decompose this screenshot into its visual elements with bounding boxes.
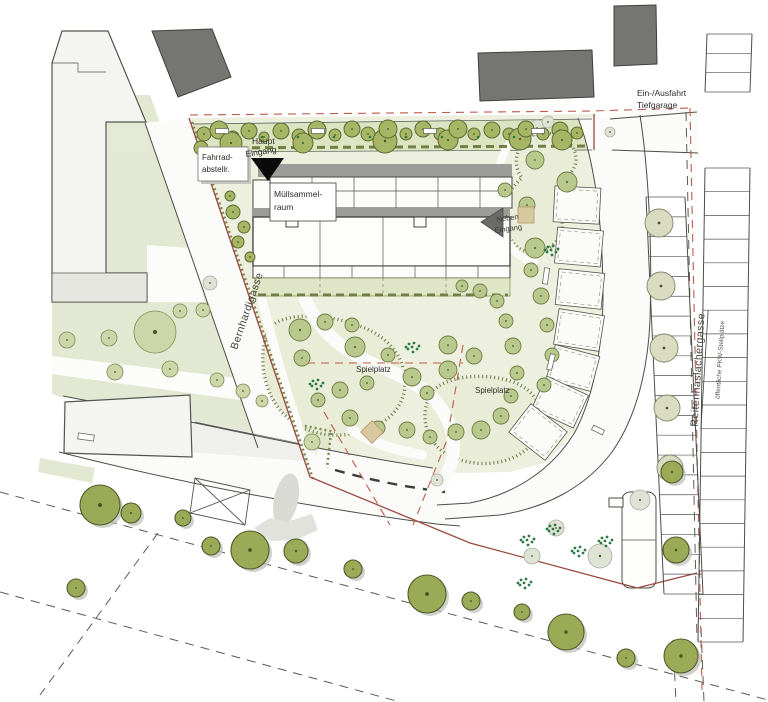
tree-trunk-dot bbox=[473, 355, 475, 357]
shrub-dot bbox=[554, 524, 557, 527]
tree-trunk-dot bbox=[504, 189, 506, 191]
tree-trunk-dot bbox=[519, 138, 521, 140]
shrub-dot bbox=[578, 555, 581, 558]
tree-trunk-dot bbox=[311, 441, 313, 443]
planting-bed bbox=[112, 128, 147, 152]
sandbox-square bbox=[518, 207, 534, 223]
shrub-dot bbox=[528, 535, 531, 538]
site-plan: Ein-/Ausfahrt Tiefgarage Fahrrad- abstel… bbox=[0, 0, 768, 702]
tree-trunk-dot bbox=[500, 415, 502, 417]
shrub-dot bbox=[524, 587, 527, 590]
tree-trunk-dot bbox=[491, 129, 493, 131]
shrub-dot bbox=[555, 251, 558, 254]
tree-trunk-dot bbox=[349, 417, 351, 419]
tree-trunk-dot bbox=[426, 392, 428, 394]
label-bike-storage: Fahrrad- bbox=[202, 153, 233, 162]
tree-trunk-dot bbox=[525, 128, 527, 130]
tree-trunk-dot bbox=[671, 471, 673, 473]
shrub-dot bbox=[573, 552, 576, 555]
bench-rect bbox=[216, 129, 229, 134]
tree-trunk-dot bbox=[339, 389, 341, 391]
shrub-dot bbox=[322, 382, 325, 385]
south-facade-row bbox=[253, 266, 510, 278]
shrub-dot bbox=[311, 385, 314, 388]
shrub-dot bbox=[546, 528, 549, 531]
shrub-dot bbox=[526, 539, 529, 542]
tree-trunk-dot bbox=[203, 133, 205, 135]
tree-trunk-dot bbox=[658, 222, 661, 225]
tree-trunk-dot bbox=[98, 503, 102, 507]
tree-trunk-dot bbox=[534, 247, 536, 249]
tree-trunk-dot bbox=[675, 549, 678, 552]
planting-dot bbox=[405, 136, 408, 139]
shrub-dot bbox=[611, 539, 614, 542]
tree-trunk-dot bbox=[295, 550, 297, 552]
tree-trunk-dot bbox=[516, 372, 518, 374]
neighbor-building-northeast bbox=[478, 50, 594, 101]
tree-trunk-dot bbox=[301, 357, 303, 359]
shrub-dot bbox=[552, 528, 555, 531]
shrub-dot bbox=[606, 536, 609, 539]
shrub-dot bbox=[316, 388, 319, 391]
bench bbox=[312, 129, 325, 134]
tree-trunk-dot bbox=[530, 269, 532, 271]
parking-rail bbox=[750, 34, 752, 92]
shrub-dot bbox=[525, 578, 528, 581]
tree-trunk-dot bbox=[660, 285, 663, 288]
tree-trunk-dot bbox=[130, 512, 132, 514]
tree-trunk-dot bbox=[334, 134, 336, 136]
tree-trunk-dot bbox=[543, 384, 545, 386]
shrub-dot bbox=[559, 527, 562, 530]
tree-trunk-dot bbox=[405, 133, 407, 135]
tree-trunk-dot bbox=[299, 329, 301, 331]
shrub-dot bbox=[546, 251, 549, 254]
shrub-dot bbox=[312, 380, 315, 383]
tree-trunk-dot bbox=[229, 195, 231, 197]
tree-trunk-dot bbox=[153, 330, 157, 334]
shrub-dot bbox=[550, 249, 553, 252]
tree-trunk-dot bbox=[510, 395, 512, 397]
tree-trunk-dot bbox=[352, 568, 354, 570]
shrub-dot bbox=[571, 550, 574, 553]
shrub-dot bbox=[413, 342, 416, 345]
label-garage-access: Ein-/Ausfahrt bbox=[637, 88, 687, 98]
planting-dot bbox=[369, 136, 372, 139]
tree-trunk-dot bbox=[534, 159, 536, 161]
tree-trunk-dot bbox=[367, 133, 369, 135]
shrub-dot bbox=[418, 345, 421, 348]
label-waste-room: Müllsammel- bbox=[274, 189, 322, 199]
planting-dot bbox=[297, 136, 300, 139]
tree-trunk-dot bbox=[302, 142, 304, 144]
tree-trunk-dot bbox=[366, 382, 368, 384]
tree-trunk-dot bbox=[179, 310, 181, 312]
shrub-dot bbox=[557, 248, 560, 251]
tree-trunk-dot bbox=[351, 128, 353, 130]
existing-building-south bbox=[64, 395, 192, 457]
tree-trunk-dot bbox=[566, 181, 568, 183]
shrub-dot bbox=[408, 343, 411, 346]
tree-trunk-dot bbox=[429, 436, 431, 438]
label-waste-room-2: raum bbox=[274, 202, 293, 212]
shrub-dot bbox=[533, 538, 536, 541]
terrace-plot bbox=[555, 269, 605, 310]
bench-rect bbox=[532, 129, 545, 134]
shrub-dot bbox=[609, 542, 612, 545]
terrace-plot bbox=[553, 309, 604, 352]
tree-trunk-dot bbox=[261, 400, 263, 402]
bench bbox=[424, 129, 437, 134]
neighbor-building-northwest bbox=[152, 29, 231, 97]
shrub-dot bbox=[411, 346, 414, 349]
tree-trunk-dot bbox=[248, 130, 250, 132]
terrace-plot-rect bbox=[555, 269, 605, 310]
shrub-dot bbox=[548, 530, 551, 533]
tree-trunk-dot bbox=[425, 592, 429, 596]
tree-trunk-dot bbox=[455, 431, 457, 433]
shrub-dot bbox=[553, 533, 556, 536]
tree-trunk-dot bbox=[317, 399, 319, 401]
tree-trunk-dot bbox=[108, 337, 110, 339]
tree-trunk-dot bbox=[447, 139, 449, 141]
tree-trunk-dot bbox=[561, 139, 563, 141]
tree-trunk-dot bbox=[324, 321, 326, 323]
tree-trunk-dot bbox=[384, 140, 386, 142]
shrub-dot bbox=[544, 249, 547, 252]
label-bike-storage-2: abstellr. bbox=[202, 165, 230, 174]
tree-trunk-dot bbox=[243, 226, 245, 228]
shrub-dot bbox=[549, 525, 552, 528]
tree-trunk-dot bbox=[540, 295, 542, 297]
terrace-plot-rect bbox=[555, 227, 604, 267]
shrub-dot bbox=[600, 542, 603, 545]
tree-trunk-dot bbox=[625, 657, 627, 659]
tree-trunk-dot bbox=[216, 379, 218, 381]
tree-trunk-dot bbox=[447, 369, 449, 371]
label-garage-access-2: Tiefgarage bbox=[637, 100, 678, 110]
shrub-dot bbox=[530, 581, 533, 584]
tree-trunk-dot bbox=[639, 499, 641, 501]
existing-building-wing bbox=[52, 273, 147, 302]
shrub-dot bbox=[598, 540, 601, 543]
terrace-plot bbox=[555, 227, 604, 267]
tree-trunk-dot bbox=[609, 131, 611, 133]
tree-trunk-dot bbox=[679, 654, 682, 657]
tree-trunk-dot bbox=[531, 555, 533, 557]
planting-dot bbox=[477, 136, 480, 139]
tree-trunk-dot bbox=[249, 256, 251, 258]
shrub-dot bbox=[523, 582, 526, 585]
shrub-dot bbox=[317, 379, 320, 382]
tree-trunk-dot bbox=[354, 346, 356, 348]
private-garden-strip bbox=[255, 278, 510, 296]
shrub-dot bbox=[522, 541, 525, 544]
tree-trunk-dot bbox=[505, 320, 507, 322]
shrub-dot bbox=[405, 346, 408, 349]
shrub-dot bbox=[584, 549, 587, 552]
tree-trunk-dot bbox=[599, 555, 601, 557]
tree-trunk-dot bbox=[461, 285, 463, 287]
shrub-dot bbox=[557, 530, 560, 533]
planting-dot bbox=[441, 136, 444, 139]
shrub-dot bbox=[519, 584, 522, 587]
label-playground-west: Spielplatz bbox=[356, 365, 391, 374]
shrub-dot bbox=[528, 584, 531, 587]
bench bbox=[532, 129, 545, 134]
tree-trunk-dot bbox=[480, 429, 482, 431]
tree-trunk-dot bbox=[512, 345, 514, 347]
roof-band-north bbox=[258, 164, 512, 177]
tree-trunk-dot bbox=[169, 368, 171, 370]
shrub-dot bbox=[547, 246, 550, 249]
tree-trunk-dot bbox=[387, 354, 389, 356]
shrub-dot bbox=[604, 540, 607, 543]
label-public-parking: öffentliche PKW-Stellplätze bbox=[715, 320, 727, 399]
tree-trunk-dot bbox=[232, 211, 234, 213]
shrub-dot bbox=[531, 541, 534, 544]
tree-trunk-dot bbox=[237, 241, 239, 243]
tree-trunk-dot bbox=[526, 204, 528, 206]
shrub-dot bbox=[523, 536, 526, 539]
shrub-dot bbox=[574, 547, 577, 550]
verge-wedge bbox=[38, 458, 95, 483]
tree-trunk-dot bbox=[546, 324, 548, 326]
tree-trunk-dot bbox=[114, 371, 116, 373]
tree-trunk-dot bbox=[479, 290, 481, 292]
tree-trunk-dot bbox=[182, 517, 184, 519]
shrub-dot bbox=[520, 539, 523, 542]
site-plan-drawing: Ein-/Ausfahrt Tiefgarage Fahrrad- abstel… bbox=[0, 0, 768, 702]
shrub-dot bbox=[601, 537, 604, 540]
tree-trunk-dot bbox=[209, 282, 211, 284]
shrub-dot bbox=[527, 544, 530, 547]
shrub-dot bbox=[579, 546, 582, 549]
tree-trunk-dot bbox=[447, 344, 449, 346]
shrub-dot bbox=[320, 385, 323, 388]
shrub-dot bbox=[407, 348, 410, 351]
tree-trunk-dot bbox=[411, 376, 413, 378]
terrace-plot bbox=[553, 186, 601, 224]
shrub-dot bbox=[582, 552, 585, 555]
shrub-dot bbox=[577, 550, 580, 553]
tree-trunk-dot bbox=[564, 630, 568, 634]
tree-trunk-dot bbox=[457, 128, 459, 130]
shrub-dot bbox=[552, 245, 555, 248]
bench-rect bbox=[312, 129, 325, 134]
terrace-plot-rect bbox=[553, 186, 601, 224]
shrub-dot bbox=[412, 351, 415, 354]
neighbor-building-tower bbox=[614, 5, 657, 66]
planting-dot bbox=[513, 136, 516, 139]
tree-trunk-dot bbox=[210, 545, 212, 547]
public-parking-strip bbox=[705, 34, 752, 92]
tree-trunk-dot bbox=[406, 429, 408, 431]
tree-trunk-dot bbox=[666, 407, 669, 410]
tree-trunk-dot bbox=[496, 300, 498, 302]
shrub-dot bbox=[309, 383, 312, 386]
tree-trunk-dot bbox=[387, 128, 389, 130]
tree-trunk-dot bbox=[242, 390, 244, 392]
shrub-dot bbox=[520, 579, 523, 582]
tree-trunk-dot bbox=[436, 479, 438, 481]
tree-trunk-dot bbox=[351, 324, 353, 326]
tree-trunk-dot bbox=[521, 611, 523, 613]
public-parking-strip bbox=[698, 168, 750, 642]
shrub-dot bbox=[416, 348, 419, 351]
shrub-dot bbox=[315, 383, 318, 386]
shrub-dot bbox=[605, 545, 608, 548]
tree-trunk-dot bbox=[75, 587, 77, 589]
shrub-dot bbox=[517, 582, 520, 585]
tree-trunk-dot bbox=[248, 548, 252, 552]
tree-trunk-dot bbox=[470, 600, 472, 602]
bench-rect bbox=[424, 129, 437, 134]
tree-trunk-dot bbox=[230, 142, 232, 144]
tree-trunk-dot bbox=[280, 130, 282, 132]
planting-dot bbox=[333, 136, 336, 139]
tree-trunk-dot bbox=[202, 309, 204, 311]
tree-trunk-dot bbox=[663, 347, 666, 350]
label-playground-east: Spielplatz bbox=[475, 386, 510, 395]
tree-trunk-dot bbox=[555, 527, 557, 529]
tree-trunk-dot bbox=[473, 133, 475, 135]
bench bbox=[216, 129, 229, 134]
tree-trunk-dot bbox=[66, 339, 68, 341]
shrub-dot bbox=[551, 254, 554, 257]
parking-rail bbox=[705, 34, 707, 92]
tree-trunk-dot bbox=[547, 121, 549, 123]
tree-trunk-dot bbox=[576, 132, 578, 134]
